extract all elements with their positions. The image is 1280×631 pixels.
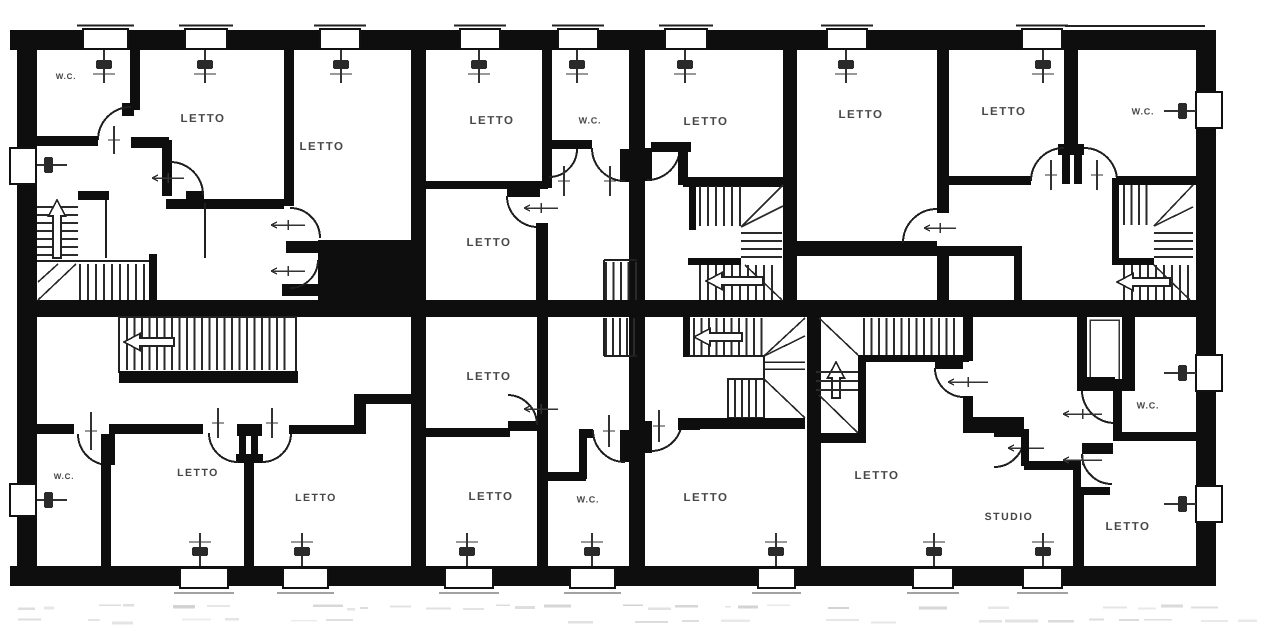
svg-text:LETTO: LETTO: [295, 492, 337, 504]
svg-text:LETTO: LETTO: [470, 115, 515, 127]
svg-text:LETTO: LETTO: [177, 467, 219, 479]
svg-text:LETTO: LETTO: [467, 237, 512, 249]
svg-text:LETTO: LETTO: [1106, 521, 1151, 533]
svg-text:LETTO: LETTO: [839, 109, 884, 121]
svg-text:LETTO: LETTO: [684, 492, 729, 504]
svg-text:W.C.: W.C.: [54, 472, 75, 481]
svg-text:LETTO: LETTO: [855, 470, 900, 482]
svg-text:W.C.: W.C.: [577, 494, 600, 504]
svg-text:LETTO: LETTO: [469, 491, 514, 503]
svg-text:LETTO: LETTO: [467, 371, 512, 383]
svg-text:LETTO: LETTO: [684, 116, 729, 128]
svg-text:LETTO: LETTO: [300, 141, 345, 153]
svg-text:W.C.: W.C.: [1137, 400, 1160, 410]
svg-text:STUDIO: STUDIO: [985, 511, 1034, 523]
svg-text:LETTO: LETTO: [982, 106, 1027, 118]
svg-text:W.C.: W.C.: [579, 115, 602, 125]
svg-text:W.C.: W.C.: [56, 72, 77, 81]
svg-text:LETTO: LETTO: [181, 113, 226, 125]
svg-text:W.C.: W.C.: [1132, 106, 1155, 116]
